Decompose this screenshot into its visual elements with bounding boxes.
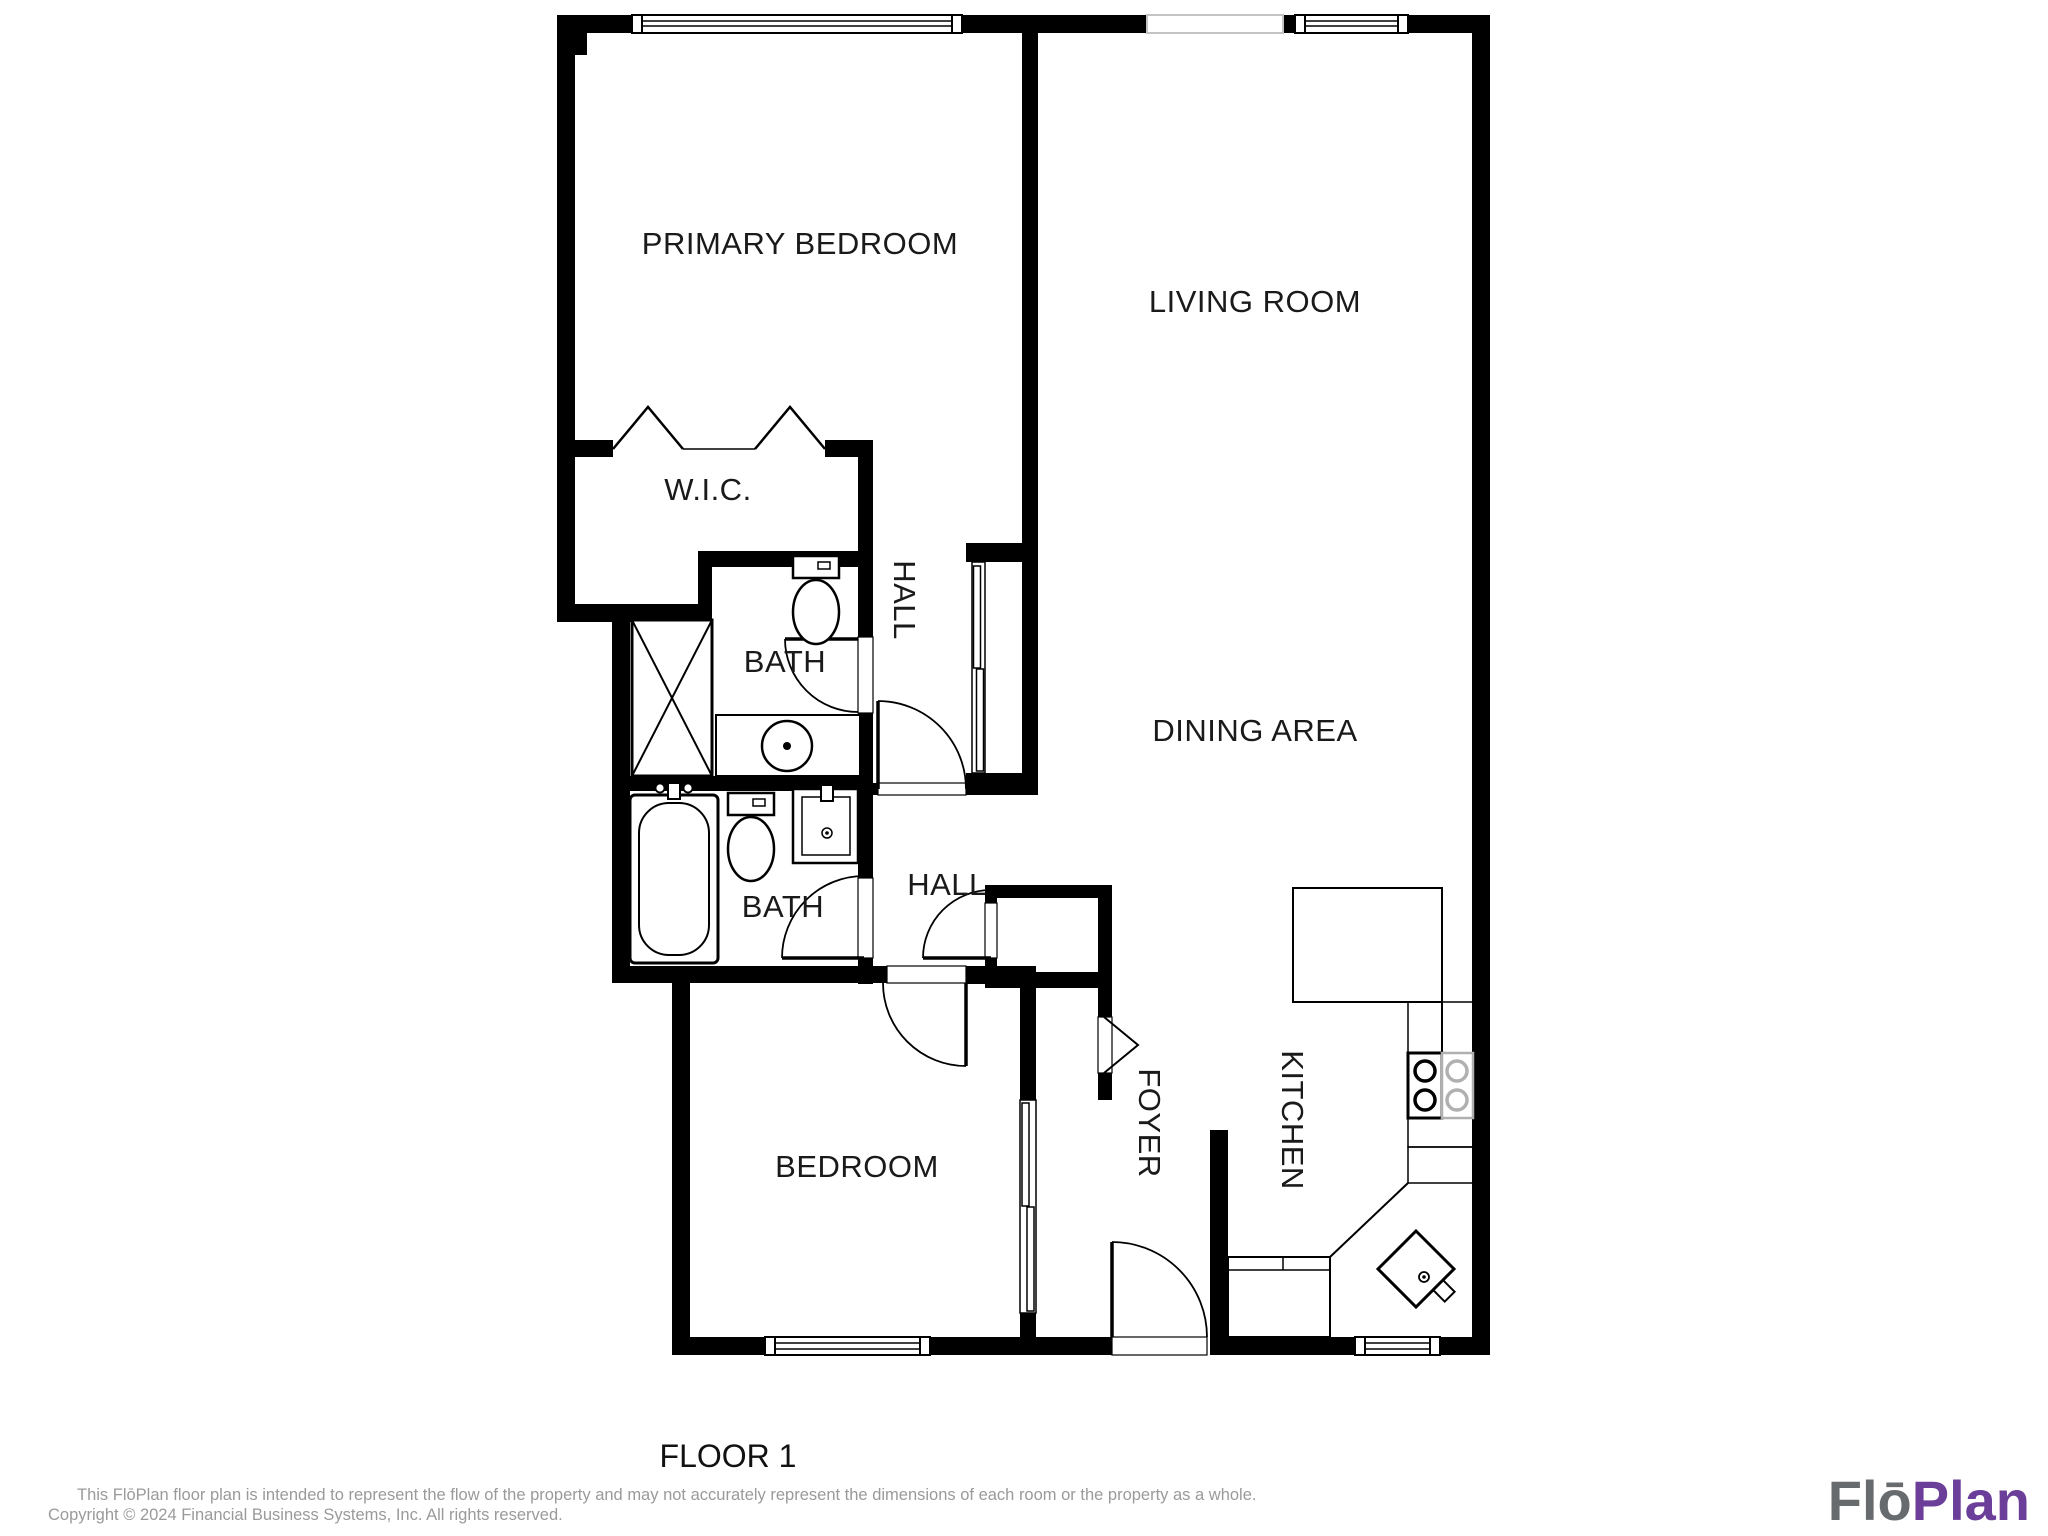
window-primary-bedroom [632, 15, 962, 33]
floplan-logo-flo: Flō [1828, 1469, 1912, 1532]
square-sink-fixture [793, 785, 858, 863]
floor-plan: PRIMARY BEDROOM LIVING ROOM W.I.C. BATH … [0, 0, 2048, 1536]
door-entry [1112, 1242, 1207, 1355]
label-primary-bedroom: PRIMARY BEDROOM [642, 226, 958, 261]
label-kitchen: KITCHEN [1275, 1050, 1310, 1190]
vanity-sink-fixture [716, 715, 860, 776]
window-bedroom [765, 1337, 930, 1355]
window-living-room [1295, 15, 1408, 33]
window-living-room-light [1147, 15, 1283, 33]
stove-fixture [1408, 1053, 1473, 1118]
toilet-fixture-lower [728, 793, 774, 881]
sliding-doors-bedroom [1020, 1100, 1036, 1313]
shower-fixture [632, 620, 712, 776]
label-wic: W.I.C. [664, 472, 751, 507]
sliding-doors-primary-closet [972, 562, 985, 773]
label-hall-primary: HALL [887, 560, 922, 640]
corner-sink-fixture [1378, 1231, 1455, 1307]
door-bedroom [883, 966, 966, 1066]
floor-label: FLOOR 1 [660, 1438, 797, 1474]
label-hall-lower: HALL [907, 867, 987, 902]
door-hall-primary [878, 701, 966, 795]
label-living-room: LIVING ROOM [1149, 284, 1361, 319]
label-bedroom: BEDROOM [775, 1149, 939, 1184]
label-bath-hall: BATH [742, 889, 824, 924]
label-foyer: FOYER [1132, 1068, 1167, 1177]
open-passage-icon [1098, 1017, 1138, 1073]
bifold-doors-wic [613, 407, 825, 449]
toilet-fixture-upper [793, 556, 839, 644]
floplan-logo-plan: Plan [1912, 1469, 2030, 1532]
disclaimer-line-2: Copyright © 2024 Financial Business Syst… [48, 1506, 563, 1524]
window-kitchen [1355, 1337, 1440, 1355]
disclaimer-line-1: This FlōPlan floor plan is intended to r… [77, 1486, 1256, 1504]
bathtub-fixture [630, 783, 718, 963]
room-labels: PRIMARY BEDROOM LIVING ROOM W.I.C. BATH … [642, 226, 1361, 1190]
label-bath-primary: BATH [744, 644, 826, 679]
label-dining-area: DINING AREA [1152, 713, 1357, 748]
floplan-logo: FlōPlan [1828, 1469, 2030, 1532]
